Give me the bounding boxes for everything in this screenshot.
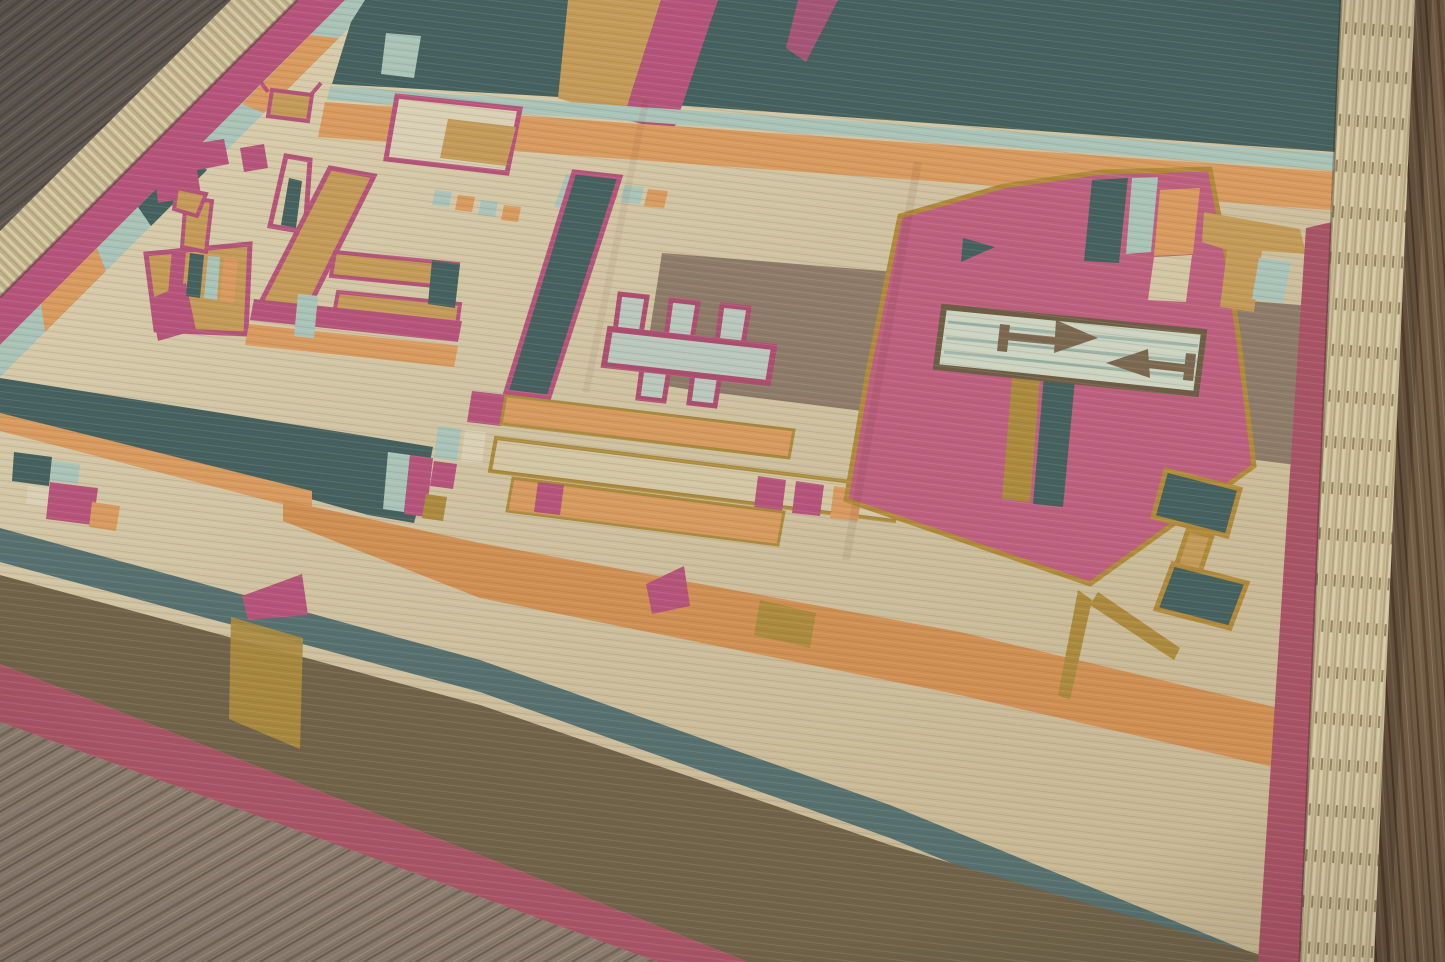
vignette [0,0,1445,962]
rug-photograph: Handwoven flat-weave kilim dhurrie rug w… [0,0,1445,962]
photo-canvas: Handwoven flat-weave kilim dhurrie rug w… [0,0,1445,962]
